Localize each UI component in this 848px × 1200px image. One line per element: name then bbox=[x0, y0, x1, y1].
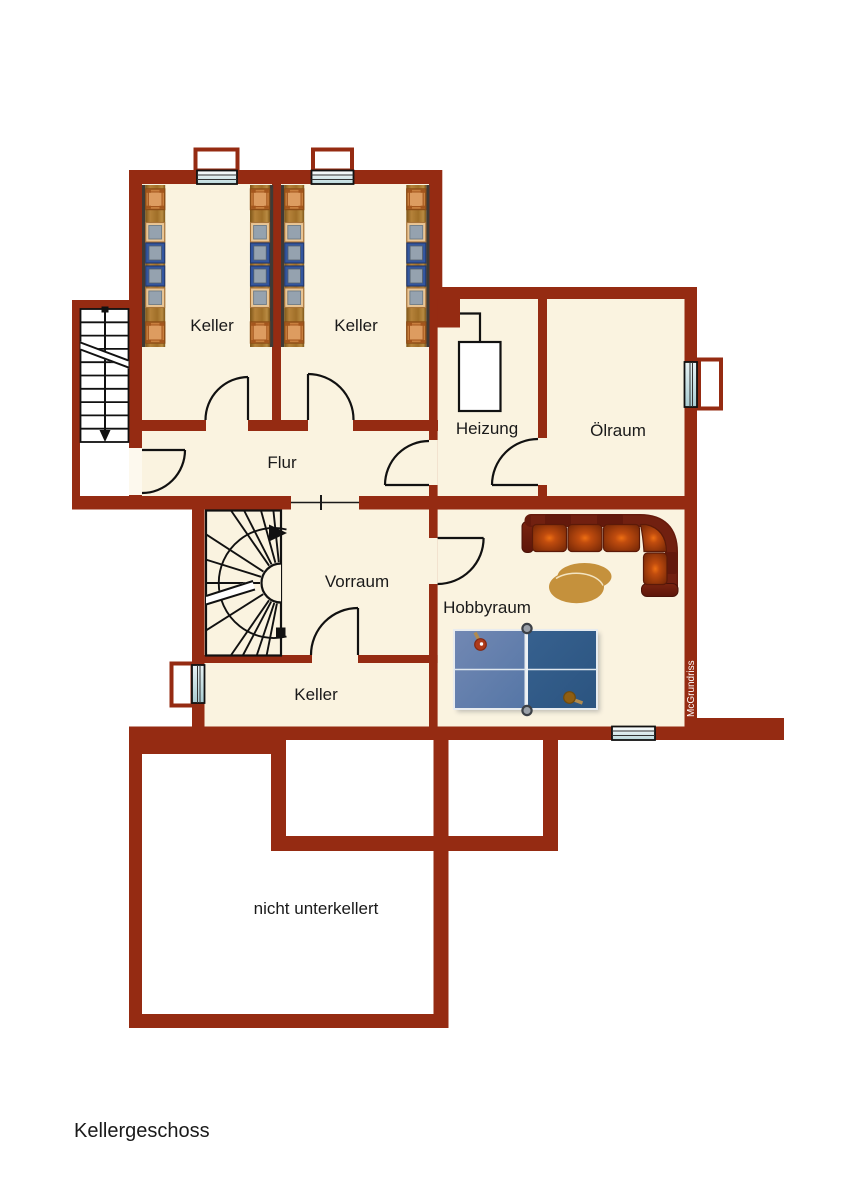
svg-text:Keller: Keller bbox=[334, 316, 378, 335]
svg-text:Keller: Keller bbox=[294, 685, 338, 704]
svg-text:Hobbyraum: Hobbyraum bbox=[443, 598, 531, 617]
svg-text:McGrundriss: McGrundriss bbox=[686, 660, 697, 717]
svg-text:Flur: Flur bbox=[267, 453, 297, 472]
svg-text:Kellergeschoss: Kellergeschoss bbox=[74, 1120, 210, 1142]
svg-text:nicht unterkellert: nicht unterkellert bbox=[254, 899, 379, 918]
svg-text:Keller: Keller bbox=[190, 316, 234, 335]
svg-text:Vorraum: Vorraum bbox=[325, 572, 389, 591]
svg-text:Heizung: Heizung bbox=[456, 419, 518, 438]
svg-text:Ölraum: Ölraum bbox=[590, 421, 646, 440]
